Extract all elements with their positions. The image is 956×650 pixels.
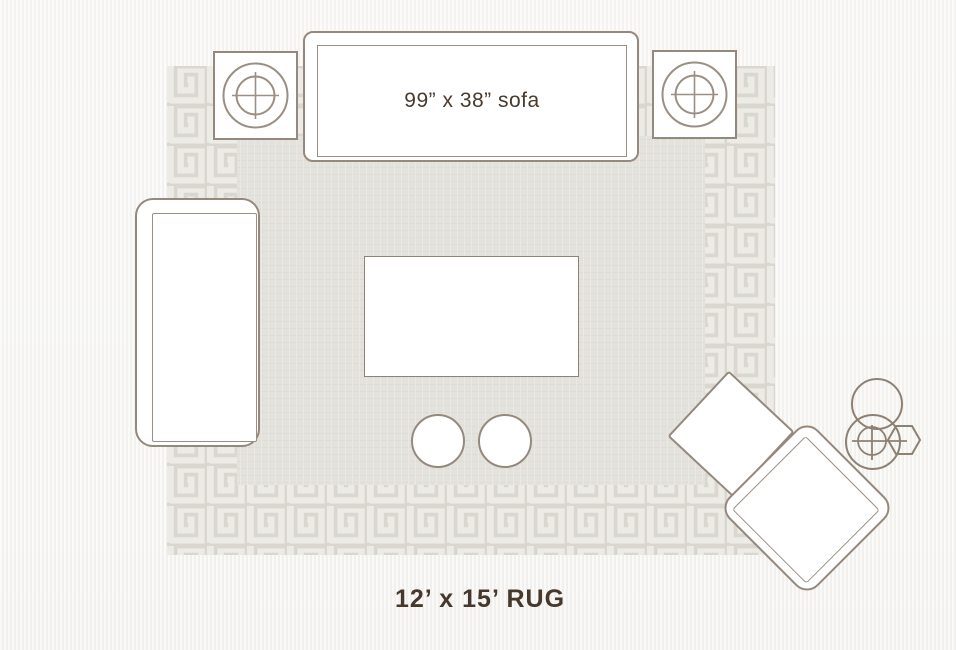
coffee-table (364, 256, 579, 377)
side-table-lamp-icon (213, 51, 298, 140)
rug-size-label: 12’ x 15’ RUG (260, 585, 700, 614)
chaise (135, 198, 260, 447)
plant-circle-icon (846, 415, 900, 469)
plant-circle-icon (852, 379, 902, 429)
side-table-right (652, 50, 737, 139)
hexagon-side-table-icon (888, 426, 920, 454)
side-table-left (213, 51, 298, 140)
side-table-lamp-icon (652, 50, 737, 139)
sofa: 99” x 38” sofa (303, 31, 639, 162)
room-layout-canvas: 99” x 38” sofa (0, 0, 956, 650)
accent-table-cluster (845, 375, 945, 475)
round-ottoman-1 (411, 414, 465, 468)
round-ottoman-2 (478, 414, 532, 468)
sofa-size-label: 99” x 38” sofa (404, 89, 539, 113)
sofa-seat: 99” x 38” sofa (317, 45, 627, 157)
chaise-seat (152, 213, 257, 442)
